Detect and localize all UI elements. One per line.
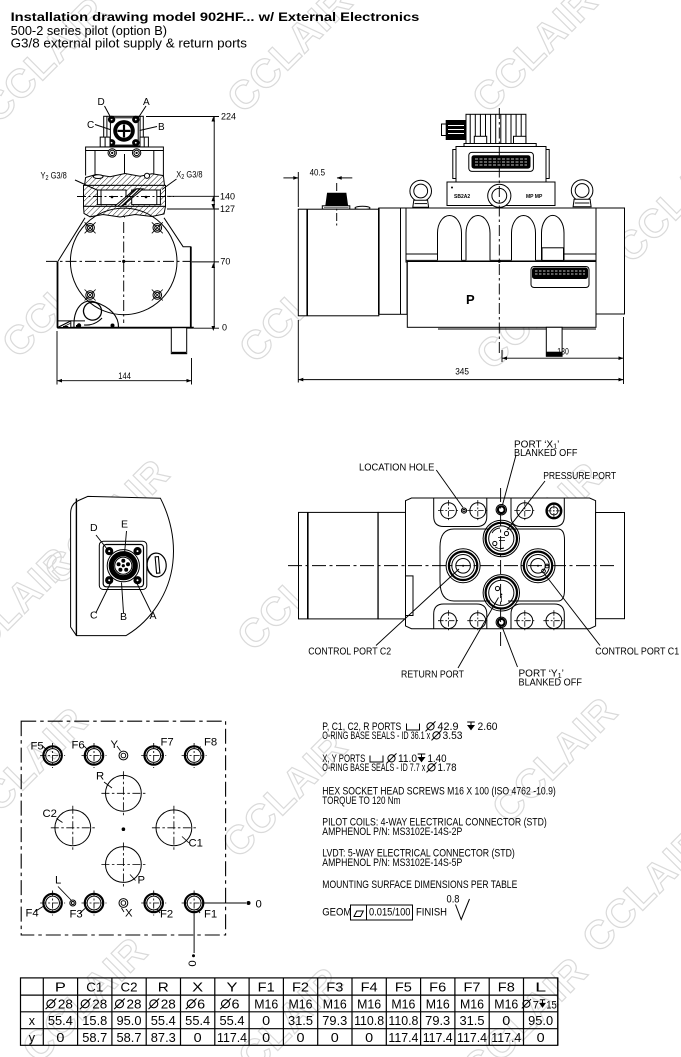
svg-text:0: 0 (365, 1031, 373, 1045)
svg-text:110.8: 110.8 (354, 1014, 384, 1028)
svg-text:P: P (138, 875, 146, 887)
svg-text:X: X (192, 980, 204, 994)
svg-text:A: A (143, 97, 150, 108)
svg-text:CONTROL PORT C1: CONTROL PORT C1 (595, 647, 679, 658)
svg-text:D: D (90, 522, 98, 534)
svg-text:0: 0 (297, 1031, 305, 1045)
svg-text:AMPHENOL P/N: MS3102E-14S-2P: AMPHENOL P/N: MS3102E-14S-2P (322, 826, 462, 838)
svg-text:P: P (466, 292, 475, 307)
svg-text:144: 144 (118, 371, 131, 381)
svg-text:F6: F6 (429, 980, 446, 994)
svg-text:C2: C2 (121, 980, 138, 994)
svg-text:x: x (29, 1014, 36, 1028)
svg-text:40.5: 40.5 (310, 168, 326, 178)
svg-text:55.4: 55.4 (48, 1014, 73, 1028)
svg-text:F5: F5 (395, 980, 412, 994)
svg-text:31.5: 31.5 (288, 1014, 313, 1028)
svg-text:F1: F1 (204, 909, 217, 921)
svg-text:M16: M16 (391, 997, 415, 1011)
svg-text:F8: F8 (204, 737, 217, 749)
svg-text:G3/8 external pilot supply & r: G3/8 external pilot supply & return port… (11, 37, 247, 51)
svg-text:O-RING BASE SEALS - ID 36.1 x: O-RING BASE SEALS - ID 36.1 x (322, 730, 430, 742)
svg-text:117.4: 117.4 (491, 1031, 521, 1045)
svg-text:0.015/100: 0.015/100 (369, 907, 411, 919)
svg-text:MOUNTING SURFACE DIMENSIONS PE: MOUNTING SURFACE DIMENSIONS PER TABLE (322, 879, 517, 891)
svg-text:F3: F3 (70, 909, 83, 921)
svg-text:C1: C1 (189, 838, 203, 850)
svg-text:117.4: 117.4 (423, 1031, 453, 1045)
svg-text:R: R (96, 771, 104, 783)
svg-text:Installation drawing model 902: Installation drawing model 902HF... w/ E… (11, 10, 420, 24)
svg-text:6: 6 (197, 997, 205, 1011)
svg-text:R: R (158, 980, 169, 994)
svg-text:TORQUE TO 120 Nm: TORQUE TO 120 Nm (322, 795, 400, 807)
svg-text:X: X (125, 908, 133, 920)
svg-text:F7: F7 (464, 980, 481, 994)
svg-text:70: 70 (220, 257, 230, 267)
svg-text:15.8: 15.8 (82, 1014, 107, 1028)
svg-text:SB2A2: SB2A2 (454, 194, 470, 200)
svg-text:F5: F5 (31, 741, 44, 753)
svg-text:D: D (98, 97, 105, 108)
svg-text:0: 0 (537, 1031, 545, 1045)
svg-text:7: 7 (533, 999, 539, 1011)
svg-text:Y2 G3/8: Y2 G3/8 (40, 170, 67, 183)
svg-text:C1: C1 (86, 980, 103, 994)
svg-text:31.5: 31.5 (460, 1014, 485, 1028)
svg-text:55.4: 55.4 (185, 1014, 210, 1028)
svg-text:PRESSURE PORT: PRESSURE PORT (543, 471, 616, 482)
svg-text:L: L (535, 980, 546, 994)
svg-text:0: 0 (256, 899, 262, 911)
svg-text:BLANKED OFF: BLANKED OFF (519, 678, 582, 689)
svg-text:6: 6 (232, 997, 240, 1011)
svg-text:GEOM: GEOM (322, 907, 351, 919)
svg-text:F8: F8 (498, 980, 515, 994)
svg-text:P: P (55, 980, 66, 994)
svg-text:0: 0 (502, 1014, 510, 1028)
svg-text:F4: F4 (26, 908, 39, 920)
svg-text:F3: F3 (326, 980, 343, 994)
svg-text:L: L (55, 875, 61, 887)
svg-text:79.3: 79.3 (425, 1014, 450, 1028)
svg-text:87.3: 87.3 (151, 1031, 176, 1045)
svg-text:Y: Y (227, 980, 239, 994)
svg-text:0.8: 0.8 (447, 894, 460, 906)
svg-text:C2: C2 (43, 808, 57, 820)
svg-text:F2: F2 (160, 909, 173, 921)
svg-text:140: 140 (220, 192, 235, 202)
svg-text:58.7: 58.7 (117, 1031, 142, 1045)
svg-text:0: 0 (222, 323, 227, 333)
svg-text:M16: M16 (254, 997, 278, 1011)
svg-text:M16: M16 (357, 997, 381, 1011)
svg-text:28: 28 (58, 997, 73, 1011)
svg-text:117.4: 117.4 (388, 1031, 418, 1045)
svg-text:F7: F7 (161, 737, 174, 749)
svg-text:117.4: 117.4 (217, 1031, 247, 1045)
svg-text:M16: M16 (426, 997, 450, 1011)
svg-text:BLANKED OFF: BLANKED OFF (514, 448, 577, 459)
svg-text:55.4: 55.4 (220, 1014, 245, 1028)
svg-text:1.78: 1.78 (438, 762, 457, 774)
svg-text:y: y (29, 1031, 36, 1045)
svg-text:X2 G3/8: X2 G3/8 (176, 169, 203, 182)
svg-text:2.60: 2.60 (478, 721, 498, 733)
svg-text:F6: F6 (72, 740, 85, 752)
svg-text:AMPHENOL P/N: MS3102E-14S-5P: AMPHENOL P/N: MS3102E-14S-5P (322, 857, 462, 869)
svg-text:55.4: 55.4 (151, 1014, 176, 1028)
svg-text:FINISH: FINISH (416, 907, 447, 919)
svg-text:M16: M16 (494, 997, 518, 1011)
svg-text:95.0: 95.0 (528, 1014, 553, 1028)
svg-text:95.0: 95.0 (117, 1014, 142, 1028)
svg-text:117.4: 117.4 (457, 1031, 487, 1045)
svg-text:LOCATION HOLE: LOCATION HOLE (359, 463, 435, 474)
svg-text:0: 0 (194, 1031, 202, 1045)
svg-text:E: E (121, 519, 128, 531)
svg-text:28: 28 (127, 997, 142, 1011)
svg-text:0: 0 (262, 1014, 270, 1028)
svg-text:28: 28 (92, 997, 107, 1011)
svg-text:M16: M16 (289, 997, 313, 1011)
svg-text:58.7: 58.7 (82, 1031, 107, 1045)
svg-text:0: 0 (187, 960, 199, 966)
svg-text:M16: M16 (460, 997, 484, 1011)
svg-text:224: 224 (221, 112, 236, 122)
svg-text:110.8: 110.8 (388, 1014, 418, 1028)
svg-text:MP MP: MP MP (526, 194, 543, 200)
svg-text:C: C (87, 120, 94, 131)
svg-text:Y: Y (111, 739, 119, 751)
svg-text:0: 0 (262, 1031, 270, 1045)
svg-text:F2: F2 (292, 980, 309, 994)
svg-text:28: 28 (161, 997, 176, 1011)
svg-text:0: 0 (331, 1031, 339, 1045)
svg-text:M16: M16 (323, 997, 347, 1011)
svg-text:CONTROL PORT C2: CONTROL PORT C2 (308, 647, 391, 658)
svg-text:B: B (158, 122, 165, 133)
svg-text:127: 127 (220, 204, 235, 214)
svg-text:RETURN PORT: RETURN PORT (401, 669, 464, 680)
svg-text:15: 15 (546, 999, 557, 1011)
svg-text:3.53: 3.53 (443, 730, 463, 742)
svg-text:79.3: 79.3 (322, 1014, 347, 1028)
svg-text:F1: F1 (258, 980, 275, 994)
svg-text:345: 345 (455, 367, 469, 377)
svg-text:F4: F4 (361, 980, 378, 994)
svg-text:O-RING BASE SEALS - ID 7.7 x: O-RING BASE SEALS - ID 7.7 x (322, 762, 425, 774)
svg-text:130: 130 (557, 347, 569, 357)
svg-text:0: 0 (56, 1031, 64, 1045)
